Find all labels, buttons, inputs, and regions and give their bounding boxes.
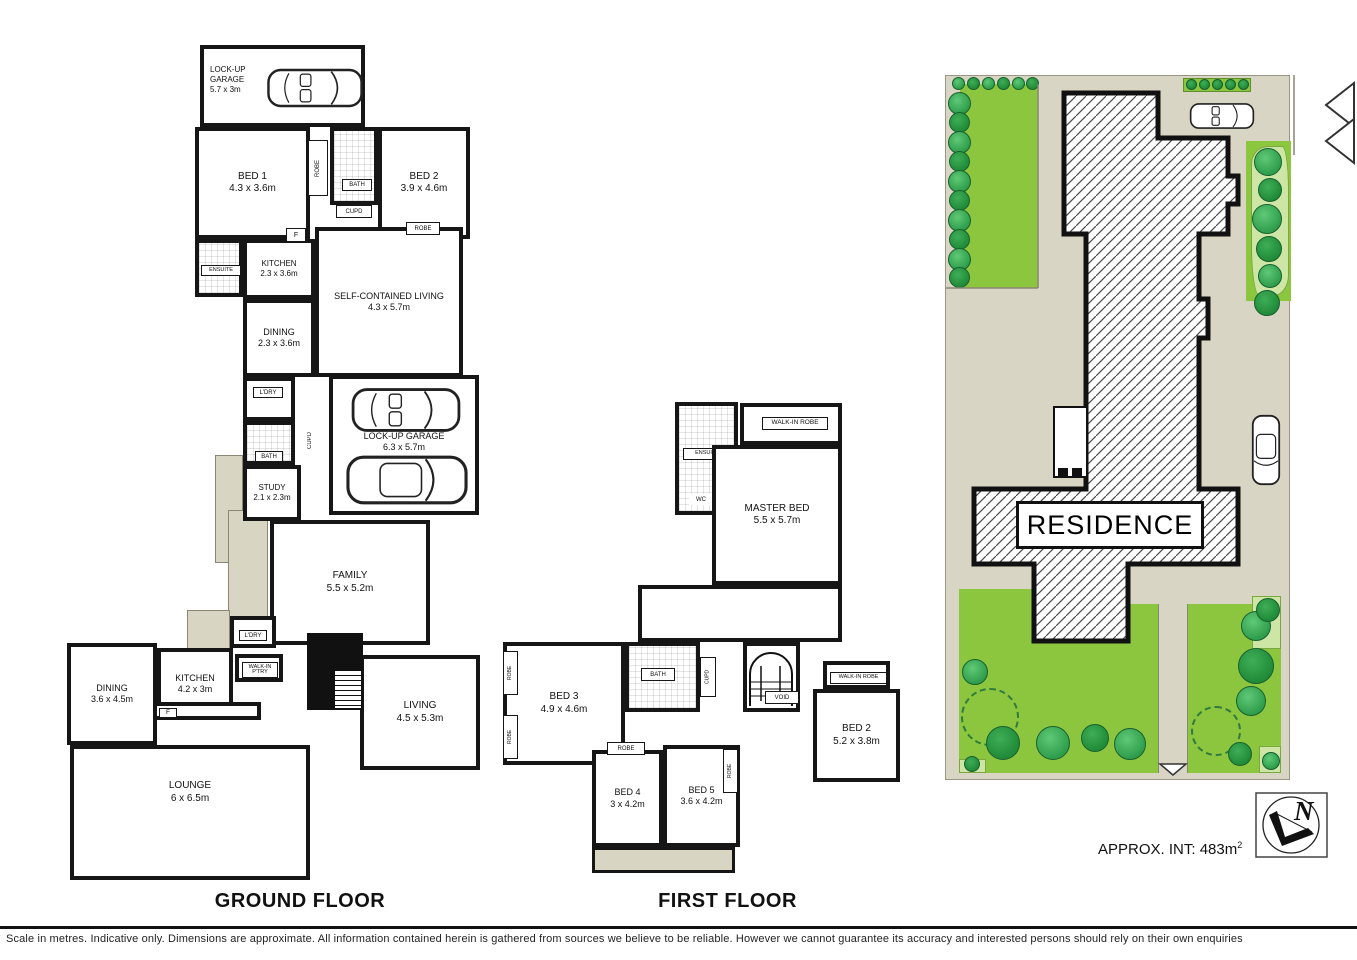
first-floor-title: FIRST FLOOR — [610, 890, 845, 913]
approx-sup: 2 — [1237, 840, 1242, 850]
ground-floor-title: GROUND FLOOR — [175, 890, 425, 913]
hall-landing — [638, 585, 842, 642]
room-dining-selfcontained: DINING 2.3 x 3.6m — [243, 299, 315, 377]
staircase — [307, 633, 363, 710]
room-dims: 4.3 x 3.6m — [201, 183, 304, 196]
room-label: LOCK-UP GARAGE — [333, 431, 475, 442]
compass-north-label: N — [1293, 796, 1315, 826]
room-dims: 2.3 x 3.6m — [248, 269, 309, 279]
room-label: KITCHEN — [248, 259, 309, 269]
room-lockup-garage-main: LOCK-UP GARAGE 6.3 x 5.7m — [329, 375, 479, 515]
room-dims: 3.6 x 4.2m — [668, 796, 734, 807]
void-tag: VOID — [765, 691, 799, 704]
robe-tag: ROBE — [308, 140, 328, 196]
walkway-post — [1058, 468, 1068, 478]
room-study: STUDY 2.1 x 2.3m — [243, 465, 301, 521]
room-label: SELF-CONTAINED LIVING — [333, 291, 445, 302]
tag-label: WALK-IN ROBE — [771, 420, 818, 427]
tag-label: BATH — [261, 454, 277, 460]
site-plan: RESIDENCE — [945, 75, 1290, 780]
street-boundary-icon — [1290, 75, 1357, 195]
car-icon — [266, 57, 364, 119]
tag-label: CUPD — [345, 209, 362, 215]
robe-tag: ROBE — [607, 742, 645, 755]
ensuite-tag: ENSUITE — [201, 265, 241, 276]
room-dining-main: DINING 3.6 x 4.5m — [67, 643, 157, 745]
tag-label: ROBE — [728, 764, 733, 778]
tag-label: ROBE — [617, 746, 634, 752]
balcony — [592, 847, 735, 873]
room-bath-top: BATH — [330, 127, 378, 205]
room-bed4: BED 4 3 x 4.2m — [592, 750, 663, 847]
room-label: BED 3 — [509, 691, 618, 704]
room-dims: 5.7 x 3m — [210, 85, 272, 95]
room-dims: 2.3 x 3.6m — [248, 338, 309, 349]
tag-label: WALK-IN P'TRY — [244, 665, 276, 676]
room-ldry-low: L'DRY — [230, 616, 276, 648]
car-icon — [1189, 94, 1255, 138]
room-label: BED 2 — [819, 723, 895, 736]
wir-tag: WALK-IN ROBE — [762, 417, 828, 430]
stair-treads — [335, 671, 361, 708]
room-label: BED 1 — [201, 171, 304, 184]
room-living-main: LIVING 4.5 x 5.3m — [360, 655, 480, 770]
tag-label: WC — [696, 497, 706, 503]
car-icon — [339, 384, 473, 436]
tag-label: BATH — [349, 182, 365, 188]
room-label: BED 4 — [597, 787, 657, 798]
footer-rule — [0, 926, 1357, 929]
robe-tag: ROBE — [723, 749, 738, 793]
kitchen-island: F — [153, 702, 261, 720]
residence-footprint — [946, 76, 1291, 781]
room-dims: 4.5 x 5.3m — [366, 713, 474, 726]
room-ensuite-ground: ENSUITE — [195, 239, 243, 297]
room-label: STUDY — [248, 483, 296, 493]
cupd-tag: CUPD — [301, 390, 319, 490]
bath-tag: BATH — [255, 451, 283, 462]
ground-floor-plan: LOCK-UP GARAGE 5.7 x 3m BED 1 4.3 x 3.6m… — [60, 40, 500, 885]
tag-label: ROBE — [414, 226, 431, 232]
car-icon — [341, 451, 473, 509]
tag-label: L'DRY — [244, 633, 261, 639]
robe-tag: ROBE — [406, 222, 440, 235]
room-dims: 5.5 x 5.7m — [718, 515, 835, 528]
approx-area: APPROX. INT: 483m2 — [1098, 840, 1242, 858]
room-walkin-pantry: WALK-IN P'TRY — [235, 654, 283, 682]
floorplan-page: LOCK-UP GARAGE 5.7 x 3m BED 1 4.3 x 3.6m… — [0, 0, 1357, 960]
room-dims: 6 x 6.5m — [79, 793, 302, 806]
room-label: DINING — [73, 683, 152, 694]
tag-label: CUPD — [706, 670, 711, 684]
room-lockup-garage-top: LOCK-UP GARAGE 5.7 x 3m — [200, 45, 365, 127]
walkway-post — [1072, 468, 1082, 478]
room-label: MASTER BED — [718, 503, 835, 516]
room-ldry-mid: L'DRY — [243, 377, 295, 421]
room-bath-first: BATH — [625, 642, 700, 712]
disclaimer-text: Scale in metres. Indicative only. Dimens… — [6, 933, 1351, 945]
room-bath-mid: BATH — [243, 421, 295, 465]
cupd-tag: CUPD — [700, 657, 716, 697]
room-walkin-robe-top: WALK-IN ROBE — [740, 403, 842, 445]
bath-tag: BATH — [342, 179, 372, 191]
wc-tag: WC — [689, 494, 713, 505]
room-lounge: LOUNGE 6 x 6.5m — [70, 745, 310, 880]
tag-label: WALK-IN ROBE — [839, 675, 879, 681]
approx-label: APPROX. INT: — [1098, 841, 1196, 858]
room-bed2-first: BED 2 5.2 x 3.8m — [813, 689, 900, 782]
room-dims: 5.5 x 5.2m — [277, 583, 423, 596]
cupd-tag: CUPD — [336, 205, 372, 218]
residence-outline — [974, 93, 1238, 641]
pantry-tag: WALK-IN P'TRY — [242, 662, 278, 678]
tag-label: ROBE — [508, 666, 513, 680]
room-dims: 3.6 x 4.5m — [73, 694, 152, 705]
stairwell: VOID — [743, 642, 800, 712]
room-bed1: BED 1 4.3 x 3.6m — [195, 127, 310, 239]
fridge-tag: F — [286, 228, 306, 242]
room-family: FAMILY 5.5 x 5.2m — [270, 520, 430, 645]
approx-value: 483m — [1200, 841, 1238, 858]
room-label: BED 2 — [384, 171, 465, 184]
tag-label: ROBE — [508, 730, 513, 744]
robe-tag: ROBE — [503, 651, 518, 695]
fridge-tag: F — [159, 708, 177, 718]
tag-label: VOID — [775, 695, 790, 701]
room-label: LOCK-UP GARAGE — [210, 65, 272, 85]
room-label: KITCHEN — [162, 673, 227, 684]
compass-icon: N — [1255, 792, 1328, 858]
deck-patch — [187, 610, 230, 650]
tag-label: ROBE — [315, 160, 321, 177]
tag-label: CUPD — [307, 432, 313, 449]
room-dims: 4.9 x 4.6m — [509, 704, 618, 717]
ldry-tag: L'DRY — [239, 630, 267, 641]
first-floor-plan: ENSUITE WC WALK-IN ROBE MASTER BED 5.5 x… — [495, 385, 920, 890]
ldry-tag: L'DRY — [253, 387, 283, 398]
bath-tag: BATH — [641, 668, 675, 681]
room-dims: 3.9 x 4.6m — [384, 183, 465, 196]
room-label: FAMILY — [277, 570, 423, 583]
tag-label: ENSUITE — [209, 268, 233, 274]
tag-label: BATH — [650, 672, 666, 678]
room-dims: 3 x 4.2m — [597, 799, 657, 810]
car-icon — [1246, 414, 1286, 486]
room-dims: 4.2 x 3m — [162, 684, 227, 695]
residence-label: RESIDENCE — [1016, 501, 1204, 549]
room-dims: 4.3 x 5.7m — [333, 302, 445, 313]
room-dims: 2.1 x 2.3m — [248, 493, 296, 503]
room-dims: 5.2 x 3.8m — [819, 736, 895, 749]
room-label: DINING — [248, 327, 309, 338]
tag-label: L'DRY — [259, 390, 276, 396]
room-walkin-robe-right: WALK-IN ROBE — [823, 661, 890, 689]
tag-label: F — [166, 710, 170, 717]
robe-tag: ROBE — [503, 715, 518, 759]
wir-tag: WALK-IN ROBE — [830, 672, 887, 684]
room-selfcontained-living: SELF-CONTAINED LIVING 4.3 x 5.7m — [315, 227, 463, 377]
tag-label: F — [294, 232, 298, 239]
room-kitchen-selfcontained: KITCHEN 2.3 x 3.6m — [243, 239, 315, 299]
room-label: LOUNGE — [79, 780, 302, 793]
room-master-bed: MASTER BED 5.5 x 5.7m — [712, 445, 842, 585]
room-label: LIVING — [366, 700, 474, 713]
